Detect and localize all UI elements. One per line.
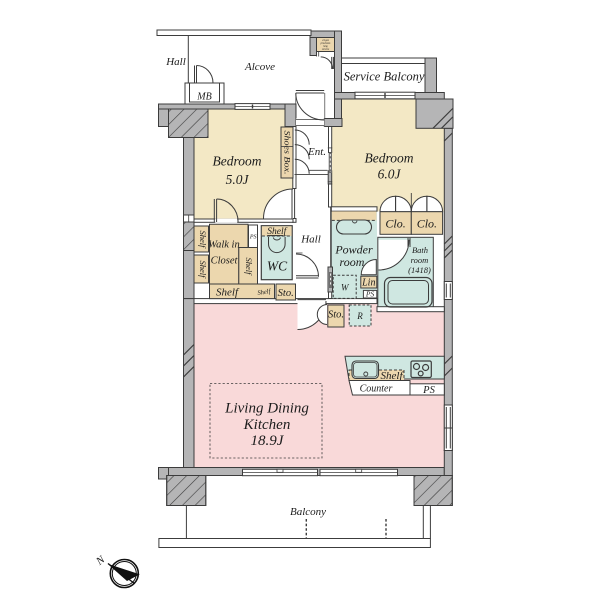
svg-text:Hall: Hall [300,234,321,246]
svg-text:Shelf: Shelf [244,258,254,277]
svg-text:PS: PS [249,235,257,241]
svg-text:Bedroom: Bedroom [365,151,414,166]
svg-text:Closet: Closet [211,256,239,267]
svg-text:Living Dining: Living Dining [224,401,309,417]
svg-text:Clo.: Clo. [417,217,437,231]
svg-text:6.0J: 6.0J [378,167,402,182]
svg-text:Hall: Hall [165,56,186,68]
svg-text:Lin: Lin [361,278,375,289]
svg-text:Shelf: Shelf [216,287,240,299]
svg-text:Bedroom: Bedroom [213,154,262,169]
svg-text:R: R [356,311,363,321]
svg-text:Clo.: Clo. [385,217,405,231]
svg-text:Shelf: Shelf [198,261,208,280]
svg-text:(1418): (1418) [408,265,431,275]
svg-text:N: N [93,553,107,568]
svg-text:PS: PS [422,385,435,396]
svg-text:Kitchen: Kitchen [243,417,291,433]
svg-text:Alcove: Alcove [244,61,275,73]
svg-text:Shelf: Shelf [198,231,208,250]
svg-text:Shelf: Shelf [267,226,287,237]
svg-text:PS: PS [365,290,375,299]
svg-text:Service Balcony: Service Balcony [344,70,425,84]
svg-text:Sto.: Sto. [278,288,294,299]
svg-text:MB: MB [196,92,211,103]
svg-text:room: room [411,255,429,265]
svg-text:Walk in: Walk in [208,240,239,251]
svg-text:room: room [340,255,365,269]
svg-text:Ent.: Ent. [307,146,326,158]
svg-text:Bath: Bath [412,245,428,255]
svg-text:Sto.: Sto. [328,310,344,321]
svg-text:service: service [322,48,330,51]
svg-text:Counter: Counter [360,384,393,395]
svg-text:WC: WC [267,259,288,274]
svg-text:Shoes Box.: Shoes Box. [283,131,292,175]
svg-text:5.0J: 5.0J [226,172,250,187]
svg-text:Balcony: Balcony [290,506,326,518]
svg-text:18.9J: 18.9J [251,433,285,449]
